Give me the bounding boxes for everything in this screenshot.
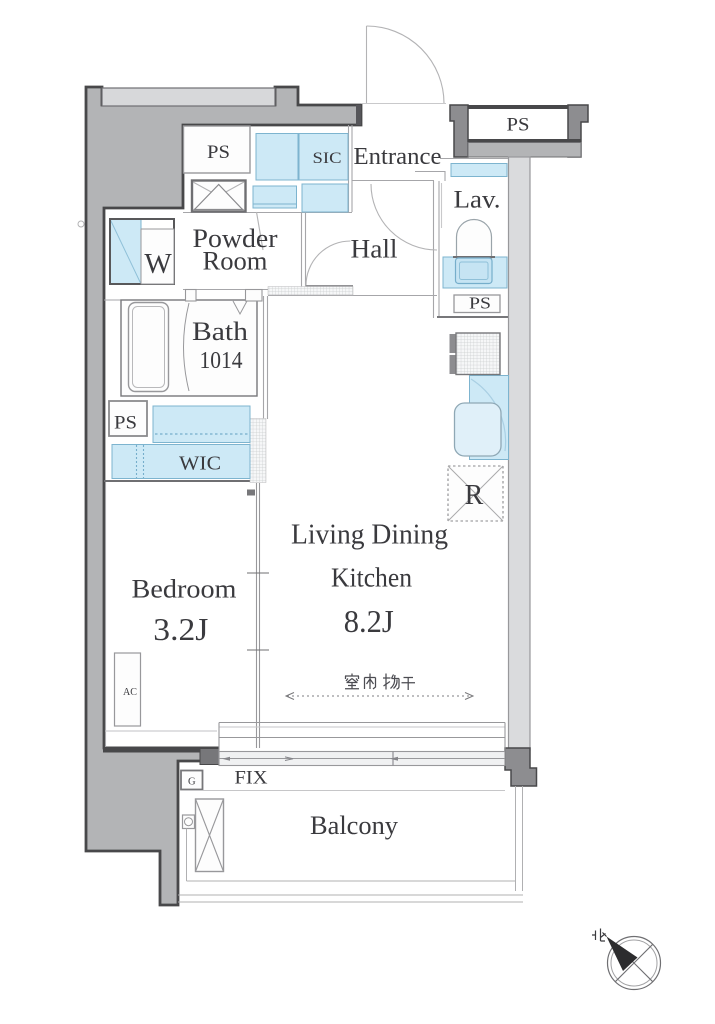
svg-text:PS: PS [507,115,530,136]
svg-text:Bedroom: Bedroom [132,575,237,604]
svg-text:Hall: Hall [351,235,398,264]
svg-text:WIC: WIC [179,453,221,475]
svg-text:SIC: SIC [313,150,342,167]
svg-text:1014: 1014 [200,348,243,374]
svg-text:Lav.: Lav. [454,187,501,214]
svg-text:8.2J: 8.2J [344,603,394,639]
svg-text:Room: Room [203,247,268,276]
svg-text:3.2J: 3.2J [153,611,208,647]
svg-text:Balcony: Balcony [310,811,398,840]
svg-text:AC: AC [123,686,137,698]
svg-text:R: R [465,480,484,511]
svg-text:G: G [188,777,196,788]
svg-text:PS: PS [207,142,230,163]
svg-text:Kitchen: Kitchen [331,563,412,593]
svg-text:Living Dining: Living Dining [291,520,448,551]
svg-text:PS: PS [469,294,491,313]
svg-text:Entrance: Entrance [354,144,442,170]
svg-text:Bath: Bath [192,317,248,346]
svg-text:PS: PS [114,413,137,434]
svg-text:W: W [144,248,172,280]
svg-text:FIX: FIX [235,768,268,789]
